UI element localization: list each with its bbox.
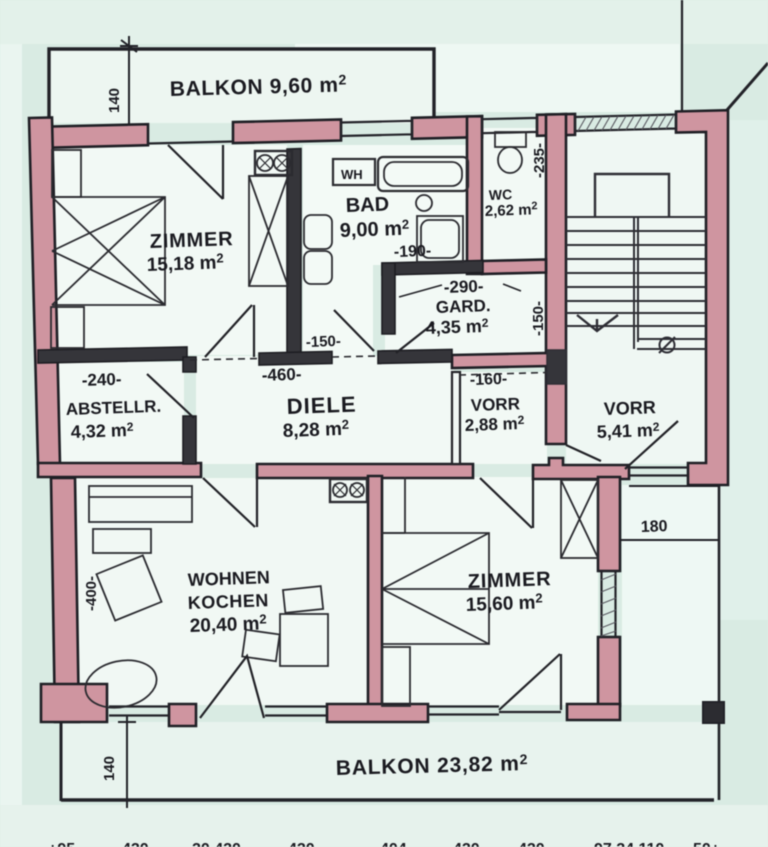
svg-text:-160-: -160- bbox=[470, 371, 508, 389]
svg-text:20,40 m2: 20,40 m2 bbox=[189, 611, 267, 637]
svg-text:WOHNEN: WOHNEN bbox=[187, 567, 270, 590]
svg-text:420: 420 bbox=[518, 841, 545, 847]
svg-text:BALKON 23,82 m2: BALKON 23,82 m2 bbox=[336, 751, 529, 780]
svg-text:ZIMMER: ZIMMER bbox=[467, 568, 551, 593]
svg-text:4,35 m2: 4,35 m2 bbox=[425, 316, 489, 338]
svg-text:WC: WC bbox=[489, 186, 513, 203]
svg-text:GARD.: GARD. bbox=[435, 296, 490, 317]
svg-text:VORR: VORR bbox=[603, 397, 656, 419]
svg-text:BAD: BAD bbox=[345, 193, 389, 216]
svg-text:DIELE: DIELE bbox=[286, 392, 357, 419]
svg-text:4,32 m2: 4,32 m2 bbox=[70, 420, 134, 442]
svg-text:-400-: -400- bbox=[83, 576, 100, 611]
svg-text:-150-: -150- bbox=[306, 333, 342, 351]
svg-text:420: 420 bbox=[122, 841, 149, 847]
svg-text:+95: +95 bbox=[48, 841, 75, 847]
svg-text:420: 420 bbox=[288, 841, 315, 847]
svg-text:8,28 m2: 8,28 m2 bbox=[282, 417, 349, 442]
svg-text:140: 140 bbox=[101, 756, 118, 781]
svg-text:WH: WH bbox=[341, 167, 363, 182]
svg-text:9,00 m2: 9,00 m2 bbox=[339, 217, 409, 242]
svg-text:5,41 m2: 5,41 m2 bbox=[596, 420, 660, 442]
svg-text:-150-: -150- bbox=[530, 301, 547, 336]
svg-text:15,18 m2: 15,18 m2 bbox=[146, 250, 224, 276]
svg-text:420: 420 bbox=[453, 841, 480, 847]
svg-text:-190-: -190- bbox=[394, 243, 432, 261]
svg-text:20 420: 20 420 bbox=[192, 841, 241, 847]
svg-text:2,62 m2: 2,62 m2 bbox=[485, 200, 538, 220]
svg-text:-460-: -460- bbox=[261, 365, 301, 385]
svg-text:140: 140 bbox=[106, 88, 123, 113]
svg-text:ABSTELLR.: ABSTELLR. bbox=[65, 397, 161, 419]
svg-text:-240-: -240- bbox=[81, 370, 121, 390]
svg-text:-290-: -290- bbox=[443, 277, 483, 297]
svg-text:180: 180 bbox=[641, 518, 668, 536]
svg-text:VORR: VORR bbox=[470, 394, 520, 415]
svg-text:-235-: -235- bbox=[531, 143, 548, 178]
svg-text:97 24 110: 97 24 110 bbox=[594, 841, 664, 847]
svg-text:15,60 m2: 15,60 m2 bbox=[465, 590, 543, 616]
svg-text:2,88 m2: 2,88 m2 bbox=[464, 413, 525, 435]
svg-text:ZIMMER: ZIMMER bbox=[149, 228, 233, 253]
svg-text:KOCHEN: KOCHEN bbox=[187, 590, 269, 613]
svg-text:404: 404 bbox=[380, 841, 407, 847]
svg-text:50+: 50+ bbox=[693, 841, 720, 847]
